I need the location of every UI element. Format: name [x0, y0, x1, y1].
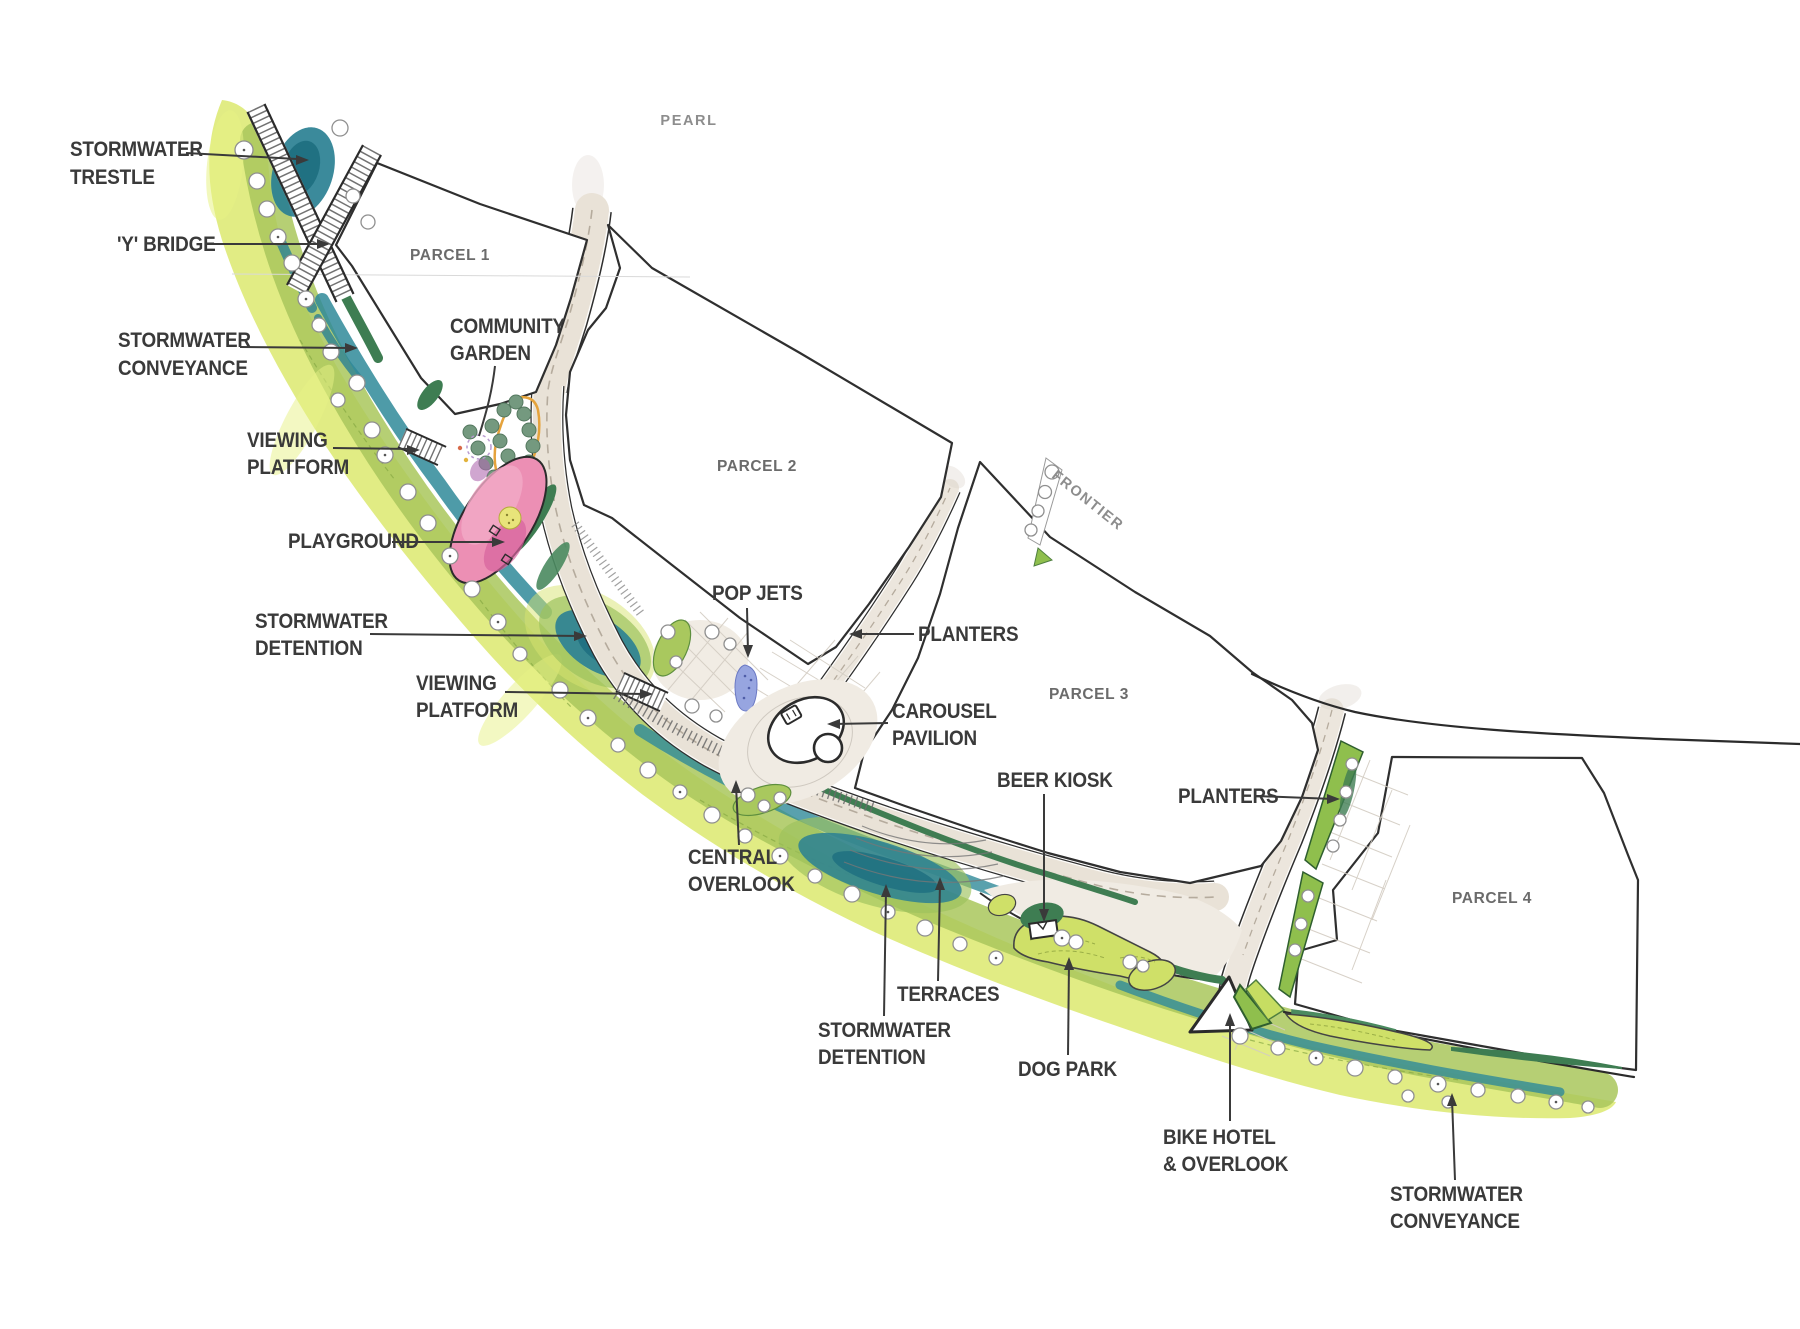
label-stormwater-detention-lower: STORMWATER DETENTION [818, 1019, 952, 1069]
label-text: PAVILION [892, 727, 977, 750]
label-street-frontier: FRONTIER [1049, 468, 1127, 535]
label-text: PLANTERS [918, 623, 1018, 646]
label-text: TERRACES [897, 983, 999, 1006]
label-text: TRESTLE [70, 166, 155, 189]
label-text: DETENTION [255, 637, 363, 660]
site-plan-page: STORMWATER TRESTLE 'Y' BRIDGE STORMWATER… [0, 0, 1800, 1329]
label-text: & OVERLOOK [1163, 1153, 1289, 1176]
label-text: COMMUNITY [450, 315, 565, 338]
label-text: STORMWATER [255, 610, 389, 633]
label-text: STORMWATER [818, 1019, 952, 1042]
label-text: VIEWING [247, 429, 328, 452]
label-text: GARDEN [450, 342, 531, 365]
label-text: CONVEYANCE [118, 357, 248, 380]
label-stormwater-conveyance-nw: STORMWATER CONVEYANCE [118, 329, 252, 380]
label-text: 'Y' BRIDGE [117, 233, 216, 256]
label-stormwater-trestle: STORMWATER TRESTLE [70, 138, 204, 189]
master-plan-map: STORMWATER TRESTLE 'Y' BRIDGE STORMWATER… [0, 0, 1800, 1329]
label-text: OVERLOOK [688, 873, 795, 896]
label-text: BIKE HOTEL [1163, 1126, 1276, 1149]
label-beer-kiosk: BEER KIOSK [997, 769, 1113, 792]
label-text: PLATFORM [247, 456, 349, 479]
label-pop-jets: POP JETS [712, 582, 803, 605]
label-planters-east: PLANTERS [1178, 785, 1278, 808]
label-street-pearl: PEARL [660, 113, 717, 129]
label-text: PLATFORM [416, 699, 518, 722]
label-text: CENTRAL [688, 846, 777, 869]
label-text: STORMWATER [118, 329, 252, 352]
label-text: DOG PARK [1018, 1058, 1118, 1081]
label-terraces: TERRACES [897, 983, 999, 1006]
label-stormwater-detention-upper: STORMWATER DETENTION [255, 610, 389, 660]
label-parcel-3: PARCEL 3 [1049, 686, 1129, 703]
label-stormwater-conveyance-se: STORMWATER CONVEYANCE [1390, 1183, 1524, 1233]
label-parcel-4: PARCEL 4 [1452, 890, 1532, 907]
label-dog-park: DOG PARK [1018, 1058, 1118, 1081]
label-text: CAROUSEL [892, 700, 997, 723]
label-y-bridge: 'Y' BRIDGE [117, 233, 216, 256]
label-text: CONVEYANCE [1390, 1210, 1520, 1233]
label-text: STORMWATER [1390, 1183, 1524, 1206]
label-playground: PLAYGROUND [288, 530, 419, 553]
label-text: VIEWING [416, 672, 497, 695]
label-text: BEER KIOSK [997, 769, 1113, 792]
label-planters-mid: PLANTERS [918, 623, 1018, 646]
label-bike-hotel: BIKE HOTEL & OVERLOOK [1163, 1126, 1289, 1176]
label-text: DETENTION [818, 1046, 926, 1069]
label-text: PLANTERS [1178, 785, 1278, 808]
label-text: STORMWATER [70, 138, 204, 161]
label-parcel-1: PARCEL 1 [410, 247, 490, 264]
label-text: POP JETS [712, 582, 803, 605]
label-parcel-2: PARCEL 2 [717, 458, 797, 475]
label-text: PLAYGROUND [288, 530, 419, 553]
